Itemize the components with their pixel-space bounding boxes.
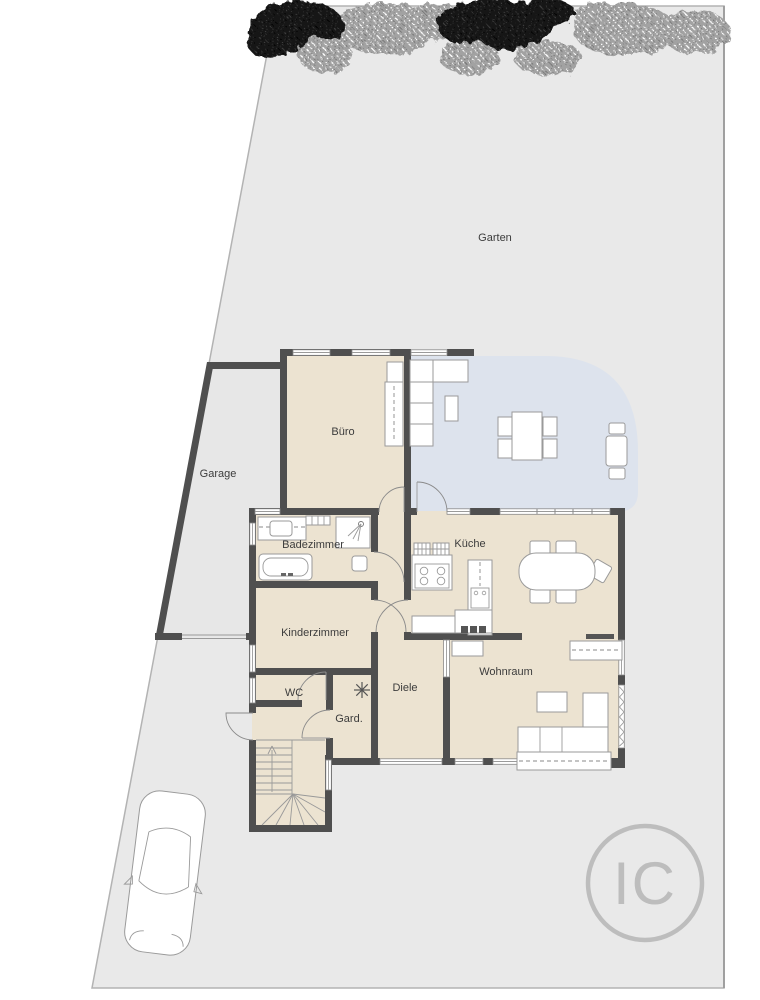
light-symbol (354, 682, 370, 698)
cabinet (452, 641, 483, 656)
washbasin (270, 521, 292, 536)
room-label-kinderzimmer: Kinderzimmer (281, 627, 349, 639)
coffee-table (537, 692, 567, 712)
room-label-garage: Garage (200, 468, 237, 480)
room-label-wc: WC (285, 687, 303, 699)
room-label-buero: Büro (331, 426, 354, 438)
room-label-garten: Garten (478, 232, 512, 244)
buero-shelves (385, 362, 403, 446)
terrace-dining-set (498, 412, 557, 460)
toilet (352, 556, 367, 571)
tv (586, 634, 614, 639)
room-label-diele: Diele (392, 682, 417, 694)
dining-table (519, 553, 595, 590)
kitchen-island (412, 555, 452, 590)
sideboard (570, 641, 622, 660)
room-label-kueche: Küche (454, 538, 485, 550)
room-label-garderobe: Gard. (335, 713, 363, 725)
floor-plan: IC Garten Garage Büro Badezimmer Küche K… (0, 0, 760, 1000)
logo-text: IC (613, 850, 677, 917)
room-label-wohnraum: Wohnraum (479, 666, 533, 678)
room-label-badezimmer: Badezimmer (282, 539, 344, 551)
sun-lounger (606, 423, 627, 479)
floor-plan-page: IC Garten Garage Büro Badezimmer Küche K… (0, 0, 760, 1000)
